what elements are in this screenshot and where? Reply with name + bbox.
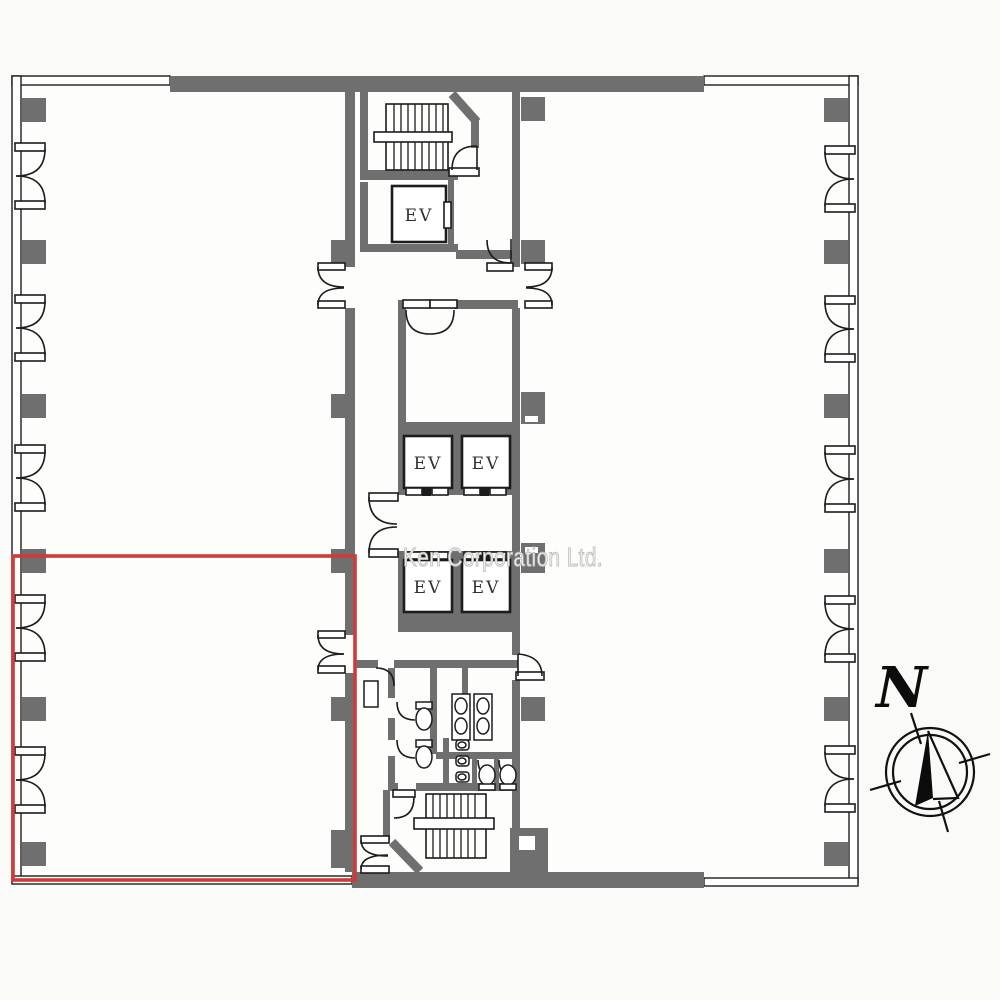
stair-landing bbox=[414, 818, 494, 829]
elevator-label: EV bbox=[414, 578, 443, 598]
elevator-label: EV bbox=[414, 454, 443, 474]
urinals bbox=[456, 740, 469, 782]
elevator-label: EV bbox=[472, 578, 501, 598]
floor-plan-page: EV EV EV EV EV bbox=[0, 0, 1000, 1000]
elevator-top: EV bbox=[392, 186, 451, 242]
utility-shaft bbox=[364, 681, 378, 707]
floor-plan: EV EV EV EV EV bbox=[0, 0, 1000, 1000]
elevator-door bbox=[444, 202, 451, 228]
north-label: N bbox=[874, 655, 929, 721]
watermark: Ken Corporation Ltd. bbox=[403, 542, 603, 572]
stair-landing bbox=[374, 132, 452, 142]
compass: N bbox=[870, 655, 990, 832]
compass-needle bbox=[915, 731, 933, 806]
elevator-label: EV bbox=[405, 206, 434, 226]
elevator-label: EV bbox=[472, 454, 501, 474]
